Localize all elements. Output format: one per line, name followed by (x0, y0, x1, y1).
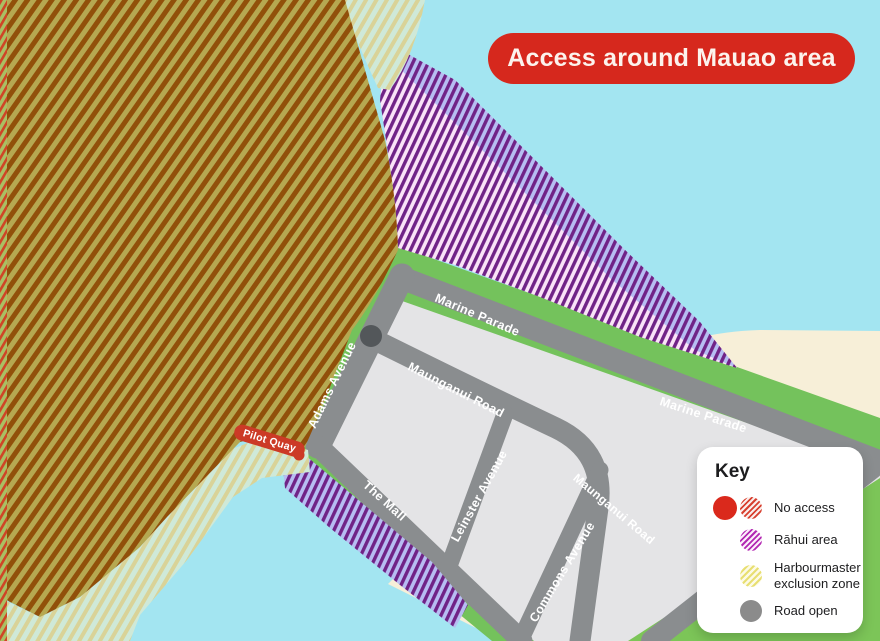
key-row-no-access: No access (713, 496, 851, 520)
key-row-exclusion: Harbourmaster exclusion zone (713, 560, 851, 591)
no-access-edge-sliver (0, 0, 7, 641)
key-row-road-open: Road open (713, 600, 851, 622)
page-title: Access around Mauao area (507, 44, 836, 73)
road-open-swatch (740, 600, 762, 622)
no-access-solid-swatch (713, 496, 737, 520)
title-banner: Access around Mauao area (488, 33, 855, 84)
no-access-hatch-swatch (740, 497, 762, 519)
key-label-rahui: Rāhui area (774, 532, 838, 548)
rahui-hatch-swatch (740, 529, 762, 551)
key-label-road-open: Road open (774, 603, 838, 619)
key-label-no-access: No access (774, 500, 835, 516)
map-canvas: Marine Parade Marine Parade Maunganui Ro… (0, 0, 880, 641)
map-key: Key No access Rāhui area Harbourmaster e… (697, 447, 863, 633)
key-title: Key (715, 461, 851, 483)
key-label-exclusion: Harbourmaster exclusion zone (774, 560, 861, 591)
exclusion-hatch-swatch (740, 565, 762, 587)
road-junction-dot (360, 325, 382, 347)
key-row-rahui: Rāhui area (713, 529, 851, 551)
